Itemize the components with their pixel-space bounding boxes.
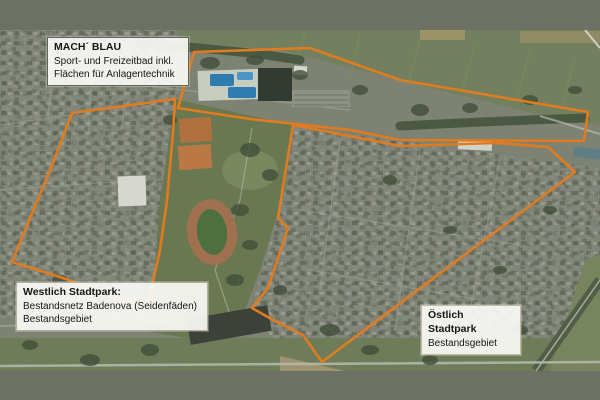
screenshot-root: { "frame": { "letterbox_color": "#6d7164… xyxy=(0,0,600,400)
westlich-line1: Bestandsnetz Badenova (Seidenfäden) xyxy=(23,300,201,313)
oestlich-title: Östlich Stadtpark xyxy=(428,309,514,337)
westlich-title: Westlich Stadtpark: xyxy=(23,286,201,300)
letterbox-bottom-bar xyxy=(0,371,600,400)
machblau-line2: Flächen für Anlagentechnik xyxy=(54,68,182,81)
oestlich-line1: Bestandsgebiet xyxy=(428,337,514,350)
machblau-title: MACH´ BLAU xyxy=(54,41,182,55)
letterbox-top-bar xyxy=(0,0,600,30)
label-box-westlich-stadtpark: Westlich Stadtpark: Bestandsnetz Badenov… xyxy=(16,282,208,331)
machblau-line1: Sport- und Freizeitbad inkl. xyxy=(54,55,182,68)
westlich-line2: Bestandsgebiet xyxy=(23,313,201,326)
label-box-machblau: MACH´ BLAU Sport- und Freizeitbad inkl. … xyxy=(47,37,189,86)
label-box-oestlich-stadtpark: Östlich Stadtpark Bestandsgebiet xyxy=(421,305,521,355)
satellite-map-image: MACH´ BLAU Sport- und Freizeitbad inkl. … xyxy=(0,30,600,371)
school-building xyxy=(117,176,146,207)
